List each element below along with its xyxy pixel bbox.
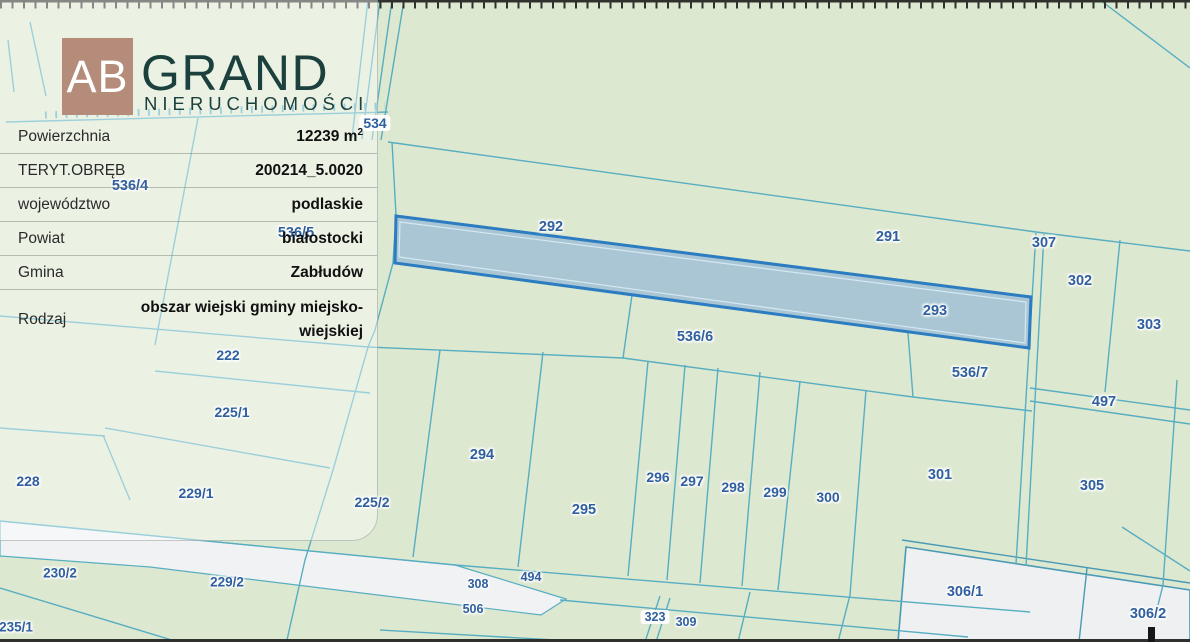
info-row-3: Powiatbiałostocki	[0, 222, 377, 256]
info-label: województwo	[18, 196, 110, 214]
brand-initials: AB	[66, 51, 128, 103]
info-row-2: województwopodlaskie	[0, 188, 377, 222]
info-value: 12239 m2	[296, 127, 363, 146]
info-label: TERYT.OBRĘB	[18, 162, 125, 180]
info-panel-content: AB GRAND NIERUCHOMOŚCI Powierzchnia12239…	[0, 0, 377, 540]
map-edge-mark	[1148, 627, 1155, 642]
info-value: Zabłudów	[291, 264, 363, 282]
info-label: Gmina	[18, 264, 64, 282]
info-value: obszar wiejski gminy miejsko-wiejskiej	[125, 296, 363, 344]
property-attributes: Powierzchnia12239 m2TERYT.OBRĘB200214_5.…	[0, 120, 377, 350]
cadastral-map-view[interactable]: 534536/4536/5292291307302303293536/6536/…	[0, 0, 1190, 642]
brand-subtitle: NIERUCHOMOŚCI	[144, 93, 368, 115]
info-label: Powiat	[18, 230, 65, 248]
info-row-1: TERYT.OBRĘB200214_5.0020	[0, 154, 377, 188]
info-label: Powierzchnia	[18, 128, 110, 146]
info-row-0: Powierzchnia12239 m2	[0, 120, 377, 154]
brand-monogram: AB	[62, 38, 133, 115]
info-label: Rodzaj	[18, 311, 66, 329]
info-row-4: GminaZabłudów	[0, 256, 377, 290]
white-parcels-306	[898, 527, 1190, 642]
highlighted-parcel[interactable]	[395, 216, 1031, 348]
info-row-5: Rodzajobszar wiejski gminy miejsko-wiejs…	[0, 290, 377, 350]
info-value: białostocki	[282, 230, 363, 248]
info-value: 200214_5.0020	[255, 162, 363, 180]
info-value: podlaskie	[292, 196, 364, 214]
